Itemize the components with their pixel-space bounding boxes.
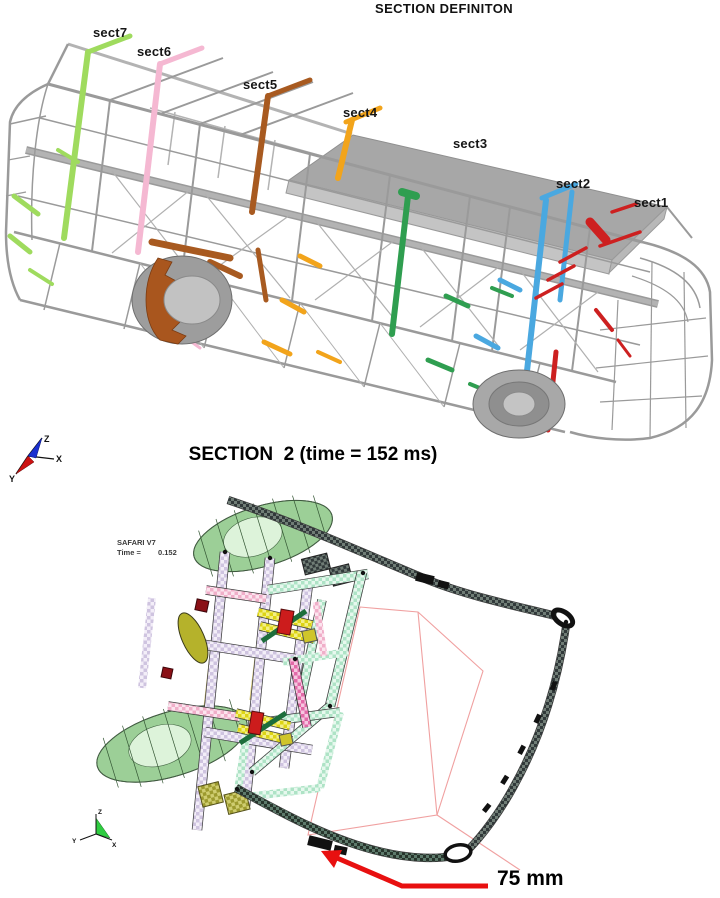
triad-x-label: X [112, 842, 117, 849]
triad-y-arrow [16, 456, 34, 474]
triad-z-arrow [28, 438, 42, 458]
label-sect7: sect7 [93, 25, 127, 40]
bus-front-cap [6, 84, 48, 300]
ring-joint [551, 607, 576, 629]
ring-joint [444, 842, 473, 863]
axis-triad-bottom: Z Y X [72, 809, 117, 849]
label-sect1: sect1 [634, 195, 668, 210]
triad-y-label: Y [9, 474, 15, 484]
triad-x-label: X [56, 454, 62, 464]
bottom-figure-title: SECTION 2 (time = 152 ms) [189, 444, 438, 466]
solver-name: SAFARI V7 [117, 538, 156, 547]
label-sect5: sect5 [243, 77, 277, 92]
bus-rear-cap [570, 242, 712, 440]
leaf-spring [172, 609, 214, 667]
triad-y-label: Y [72, 838, 77, 845]
triad-z-label: Z [98, 809, 102, 816]
triad-z-label: Z [44, 434, 50, 444]
annotation-75mm: 75 mm [497, 867, 564, 891]
label-sect6: sect6 [137, 44, 171, 59]
solver-time-label: Time = [117, 548, 141, 557]
axis-triad-top: Z X Y [9, 434, 62, 484]
solver-time-value: 0.152 [158, 548, 177, 557]
figure-page: Z X Y [0, 0, 720, 898]
front-wheel [132, 256, 232, 344]
label-sect4: sect4 [343, 105, 377, 120]
chassis-frame [142, 552, 368, 830]
bus-wireframe [6, 36, 712, 440]
top-figure-title: SECTION DEFINITON [375, 1, 513, 16]
rear-wheel [473, 370, 565, 438]
label-sect2: sect2 [556, 176, 590, 191]
label-sect3: sect3 [453, 136, 487, 151]
